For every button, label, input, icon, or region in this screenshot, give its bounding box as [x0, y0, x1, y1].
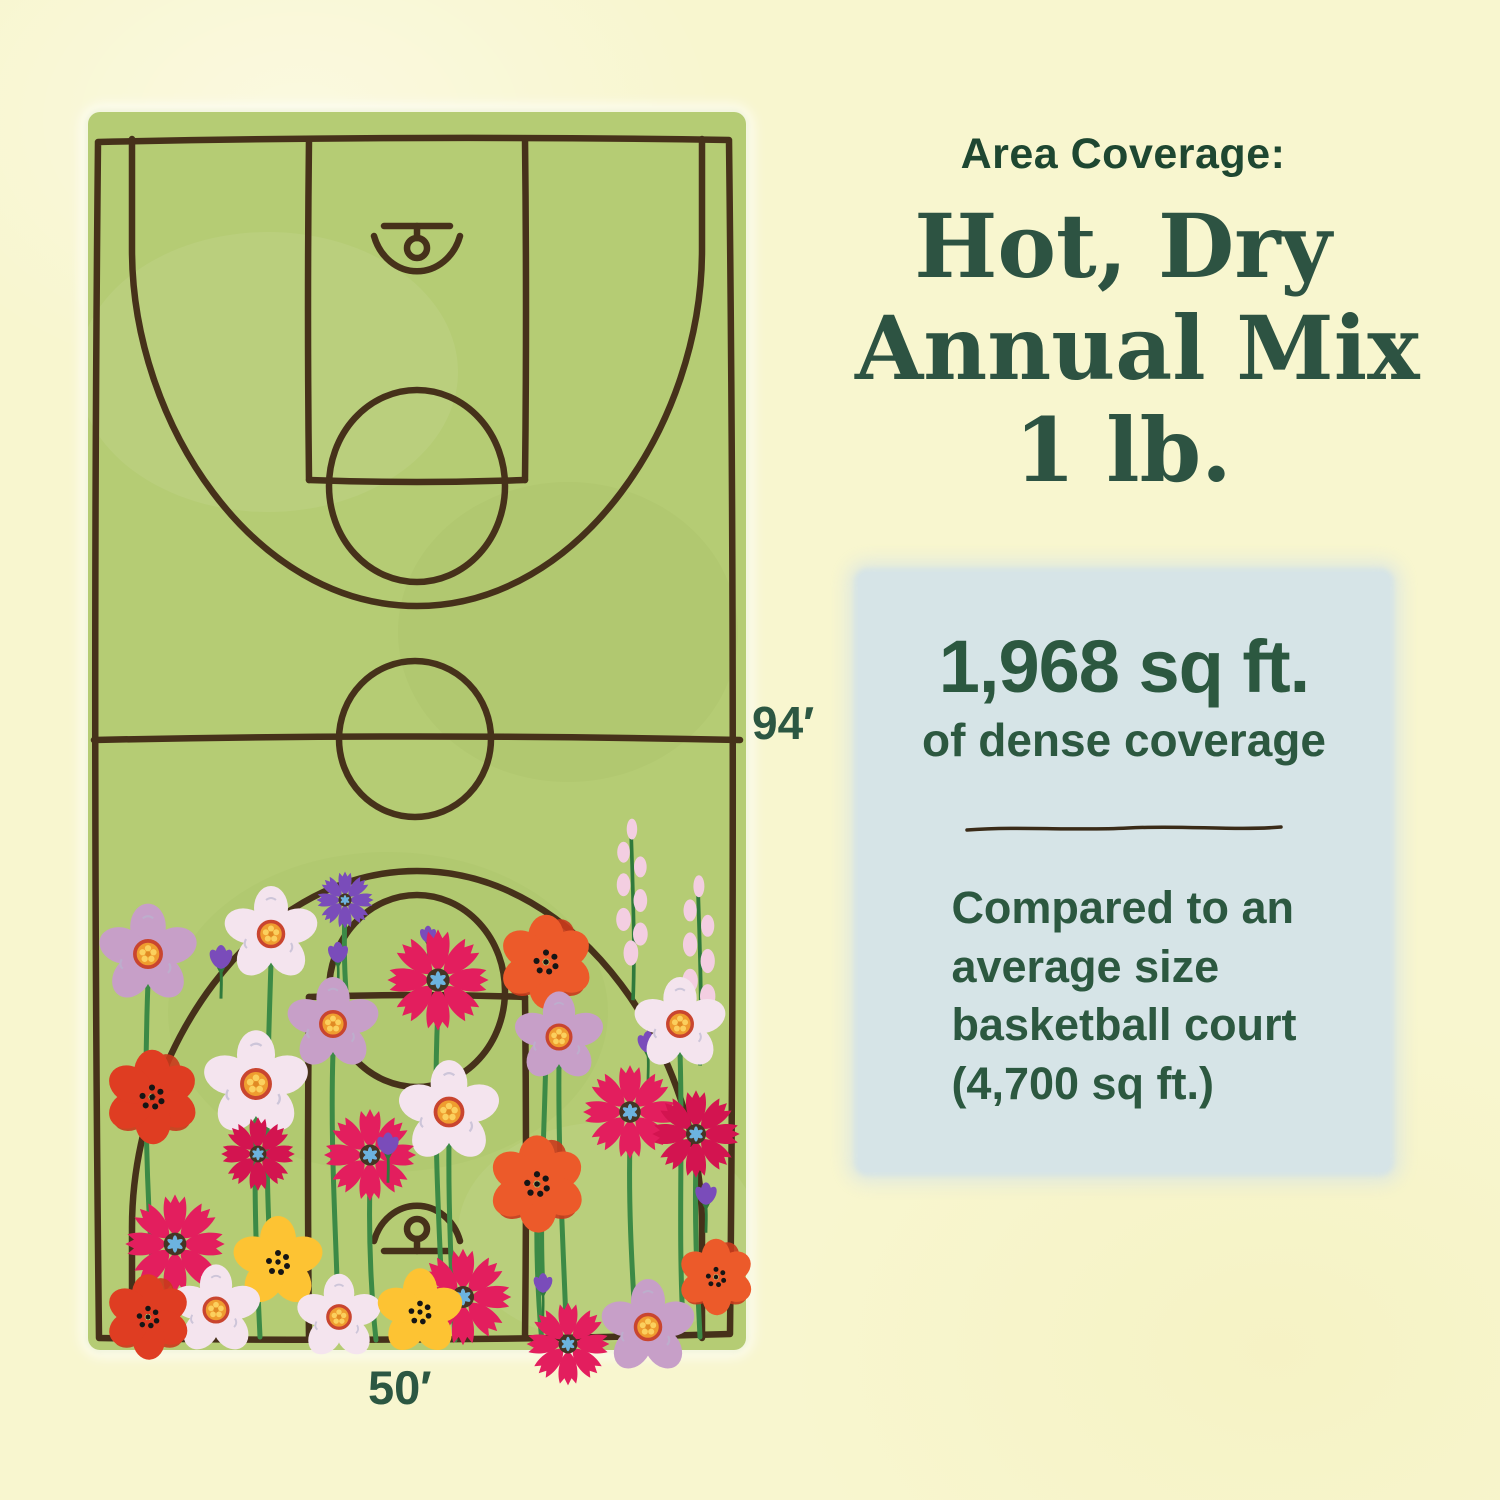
court-svg: [88, 112, 746, 1350]
flower: [324, 1109, 416, 1201]
eyebrow-label: Area Coverage:: [855, 130, 1391, 179]
court-illustration: [88, 112, 746, 1350]
hand-drawn-divider: [963, 821, 1285, 835]
infographic-canvas: 94′ 50′ Area Coverage: Hot, Dry Annual M…: [0, 0, 1500, 1500]
header: Area Coverage: Hot, Dry Annual Mix 1 lb.: [855, 130, 1391, 501]
court-width-label: 50′: [368, 1360, 432, 1415]
title-line-2: Annual Mix: [855, 297, 1391, 399]
flower: [221, 1117, 295, 1191]
flower: [527, 1303, 610, 1386]
comparison-line-4: (4,700 sq ft.): [951, 1055, 1296, 1114]
comparison-line-2: average size: [951, 938, 1296, 997]
coverage-subtitle: of dense coverage: [922, 713, 1326, 767]
title-line-3: 1 lb.: [855, 399, 1391, 501]
half-court-line: [94, 737, 740, 741]
flower: [652, 1090, 739, 1177]
court-length-label: 94′: [752, 696, 814, 750]
comparison-line-3: basketball court: [951, 996, 1296, 1055]
comparison-line-1: Compared to an: [951, 879, 1296, 938]
comparison-text: Compared to an average size basketball c…: [951, 879, 1296, 1113]
flower: [387, 929, 488, 1030]
coverage-card: 1,968 sq ft. of dense coverage Compared …: [858, 572, 1390, 1172]
title-line-1: Hot, Dry: [855, 195, 1391, 297]
flower: [316, 871, 373, 928]
coverage-amount: 1,968 sq ft.: [939, 624, 1310, 709]
page-title: Hot, Dry Annual Mix 1 lb.: [855, 195, 1391, 501]
